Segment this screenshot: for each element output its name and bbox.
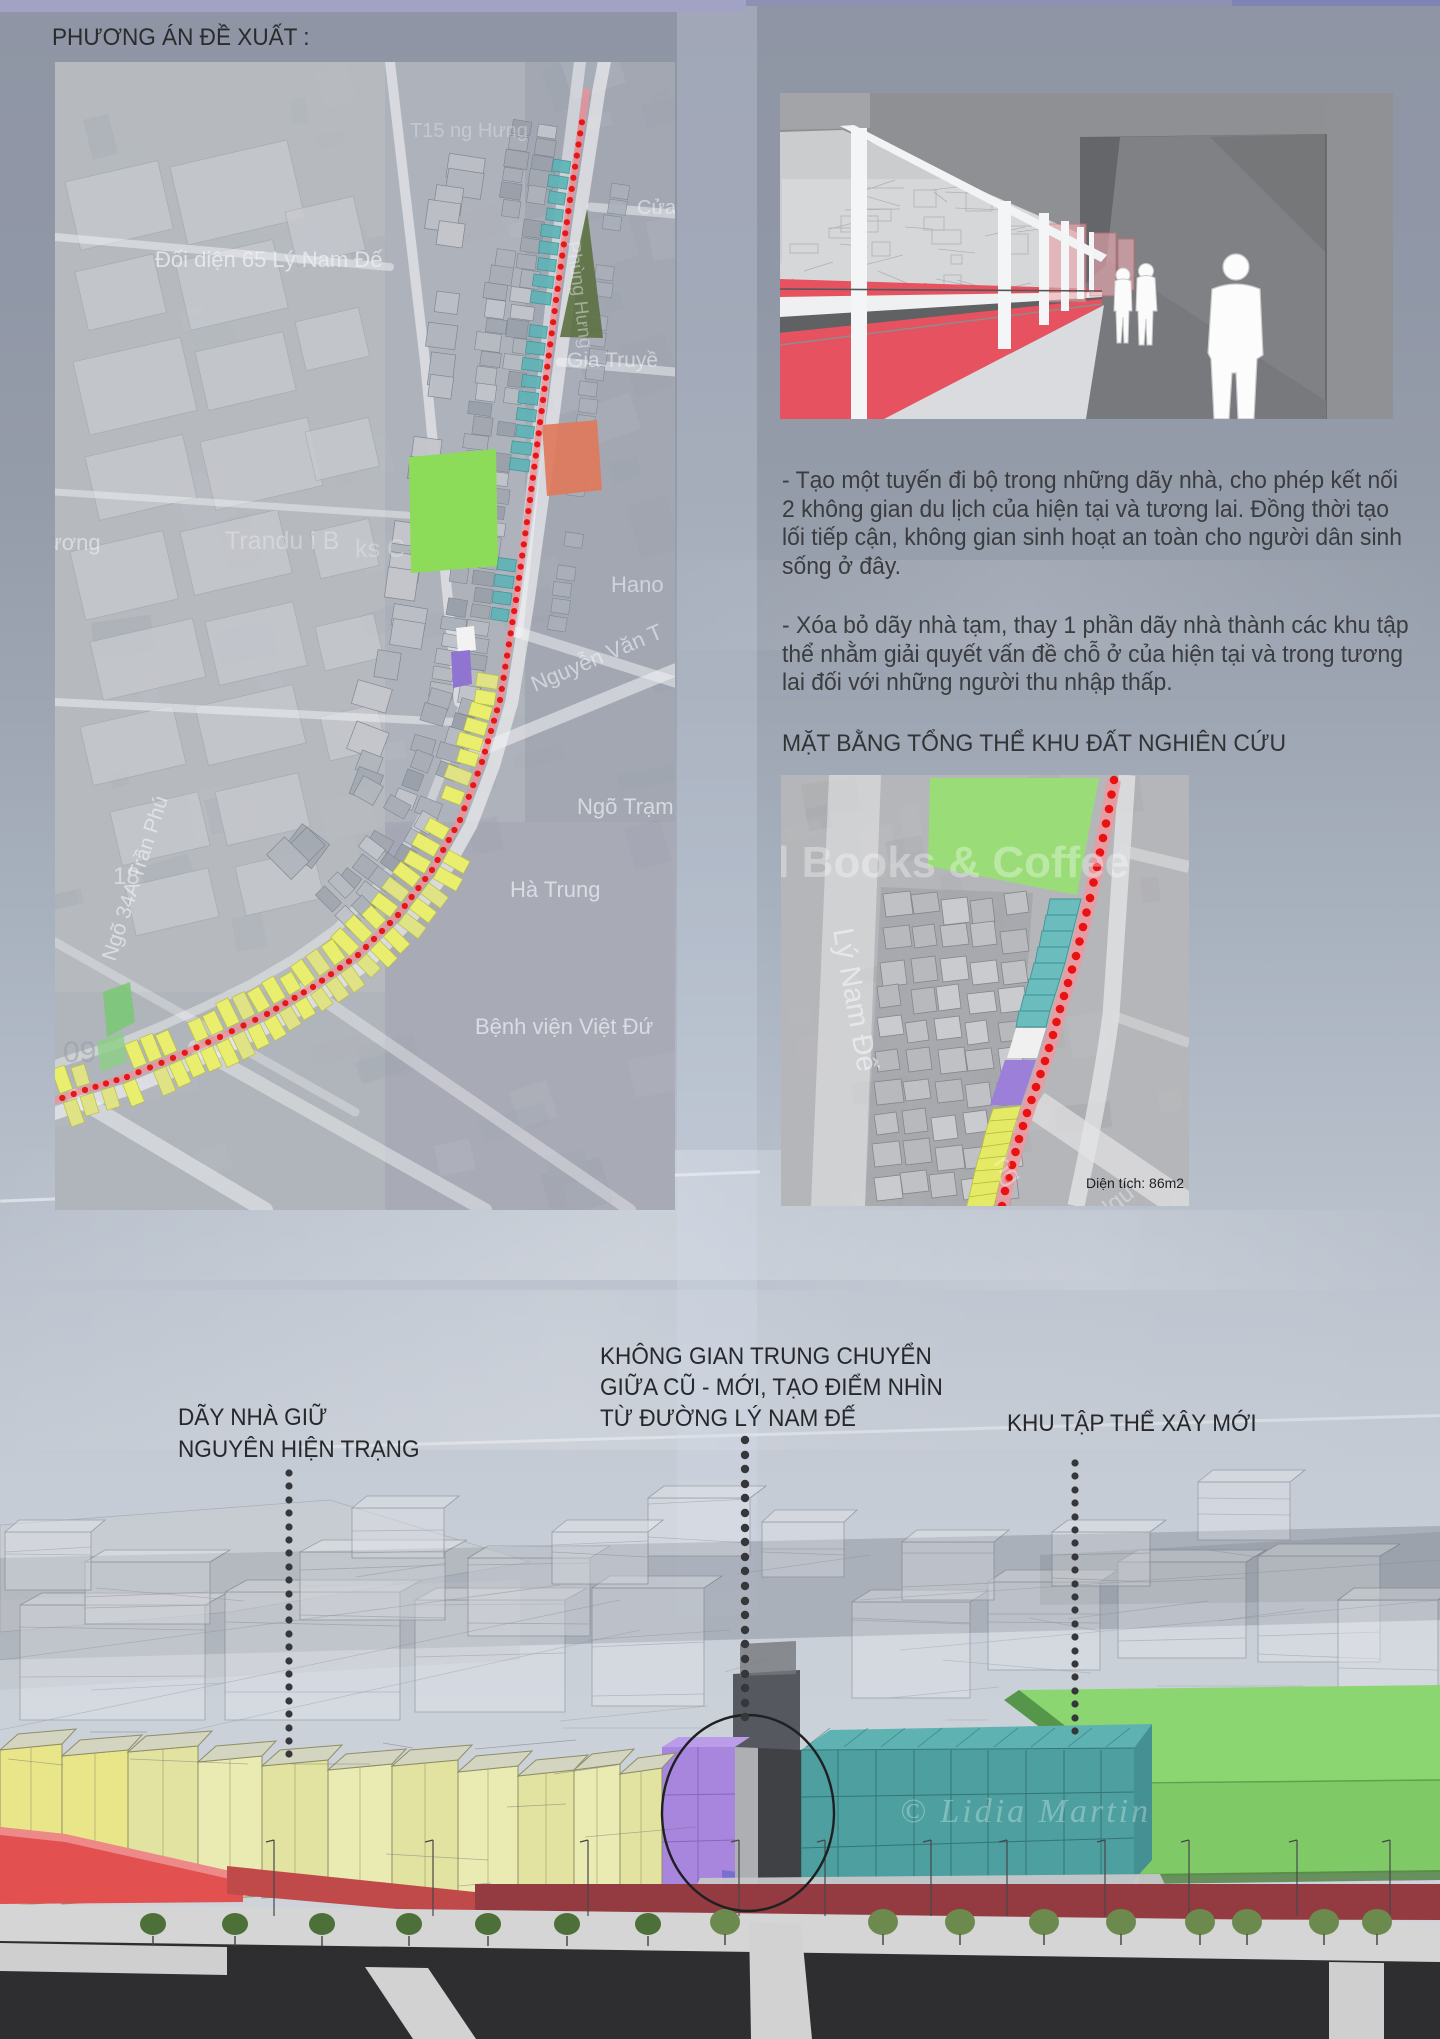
svg-text:Diện tích: 86m2: Diện tích: 86m2 — [1086, 1175, 1184, 1191]
svg-text:ương: ương — [55, 530, 101, 555]
svg-text:Hà Trung: Hà Trung — [510, 877, 601, 902]
svg-text:ks C: ks C — [355, 535, 405, 563]
svg-text:T15 ng Hưng: T15 ng Hưng — [410, 120, 528, 142]
svg-text:© Lidia Martin: © Lidia Martin — [900, 1793, 1151, 1830]
svg-text:il Books & Coffee: il Books & Coffee — [781, 838, 1129, 887]
svg-text:Đối diện 65 Lý Nam Đế: Đối diện 65 Lý Nam Đế — [155, 247, 382, 272]
svg-text:Bệnh viện Việt Đứ: Bệnh viện Việt Đứ — [475, 1014, 653, 1039]
svg-text:Trandu i B: Trandu i B — [225, 527, 339, 555]
svg-text:18: 18 — [113, 863, 140, 890]
svg-text:Hano: Hano — [611, 572, 664, 597]
svg-text:Cửa: Cửa — [637, 197, 675, 219]
svg-text:Ngõ Trạm: Ngõ Trạm — [577, 794, 674, 819]
svg-text:09: 09 — [63, 1036, 96, 1069]
svg-text:Gia Truyề: Gia Truyề — [567, 349, 658, 372]
